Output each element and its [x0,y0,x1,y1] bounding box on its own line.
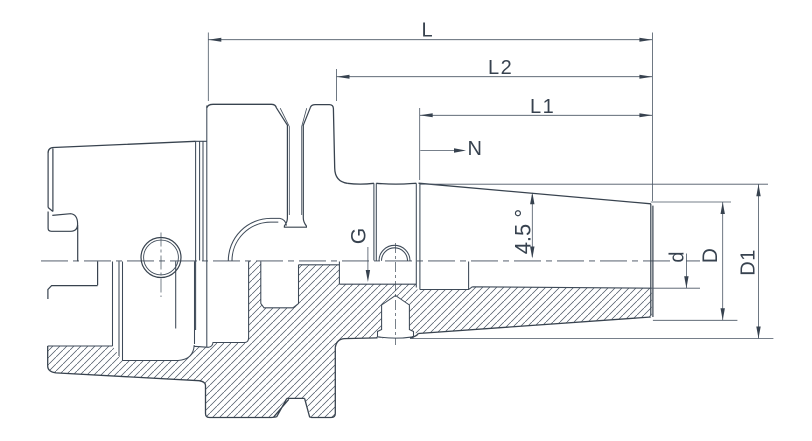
svg-text:L1: L1 [530,96,555,118]
svg-text:D1: D1 [737,249,759,276]
svg-text:L2: L2 [488,57,513,79]
svg-text:N: N [468,138,482,160]
svg-text:4.5 °: 4.5 ° [511,209,536,255]
svg-text:d: d [667,252,689,263]
svg-text:D: D [699,248,722,263]
svg-text:G: G [348,228,371,244]
svg-text:L: L [422,20,433,42]
